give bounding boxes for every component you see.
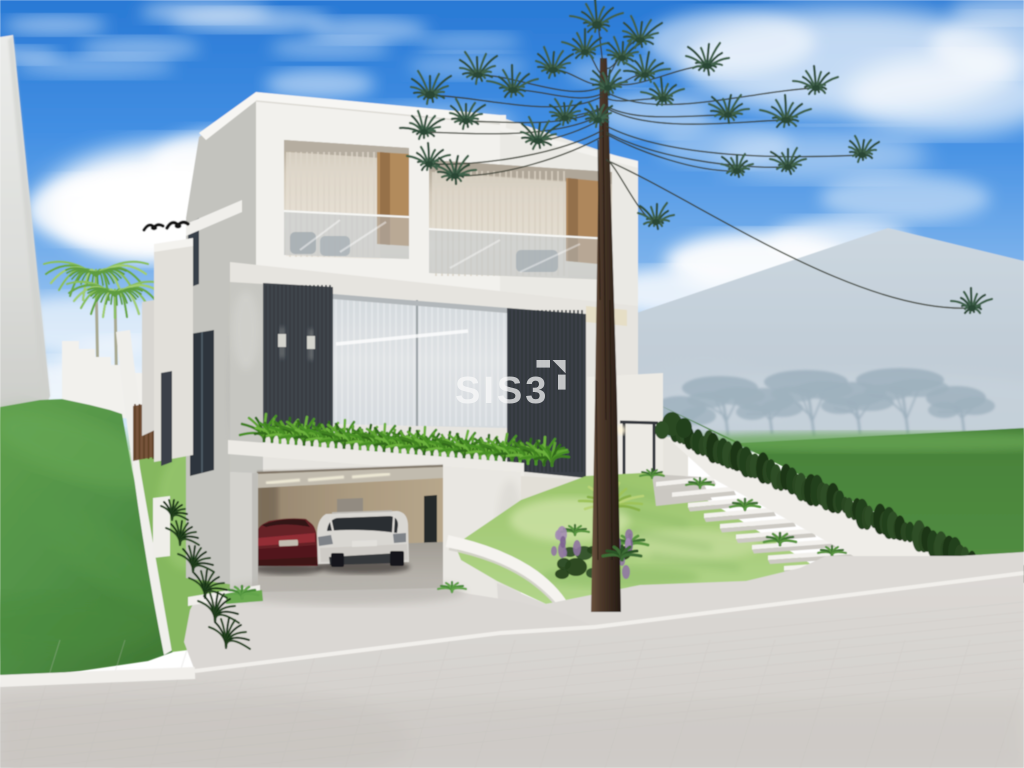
svg-text:SIS3: SIS3 bbox=[455, 370, 549, 412]
